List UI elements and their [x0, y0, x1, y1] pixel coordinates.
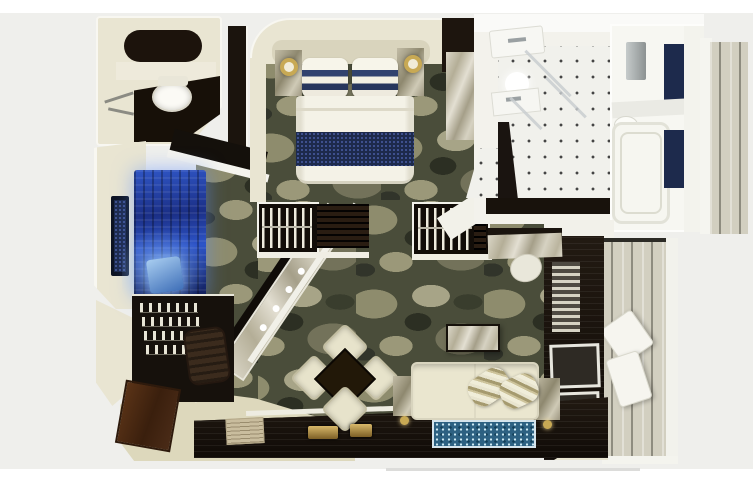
door-threshold [350, 424, 372, 437]
bedroom-left-wall [250, 58, 266, 202]
floor-plan [0, 0, 753, 502]
closet-left-hangers [262, 208, 312, 248]
balcony-railing [666, 238, 678, 462]
shag-rug [225, 417, 264, 445]
bench-slats [552, 262, 580, 332]
console-cabinet [115, 380, 181, 453]
lounge-chair [182, 325, 231, 386]
guest-bath-counter [124, 30, 202, 62]
toilet-tank [158, 76, 188, 86]
door-threshold [308, 426, 338, 439]
bathtub-inner [620, 132, 662, 214]
area-rug [432, 420, 536, 448]
glassware-shelf [140, 303, 198, 313]
bed-runner [296, 132, 414, 166]
closet-right-ledge [412, 254, 492, 260]
closet-left-ledge [257, 252, 369, 258]
bath-south-wall [486, 198, 612, 214]
floor-lamp [400, 416, 409, 425]
pillow-right [352, 58, 398, 98]
glassware-shelf [142, 317, 200, 327]
side-balcony-deck [710, 42, 748, 234]
navy-accent-panel [664, 130, 684, 188]
navy-accent-panel [664, 44, 684, 106]
table-lamp-left [280, 58, 298, 76]
duvet-fold [296, 108, 414, 111]
shower-head [626, 42, 646, 80]
plan-shadow-line [386, 468, 640, 471]
dresser [317, 204, 369, 248]
pillow-left [302, 58, 348, 98]
floor-lamp [543, 420, 552, 429]
balcony-edge [602, 456, 678, 464]
toilet [152, 82, 192, 112]
table-lamp-right [404, 55, 422, 73]
lit-art-object [146, 256, 184, 294]
coffee-table [446, 324, 500, 352]
